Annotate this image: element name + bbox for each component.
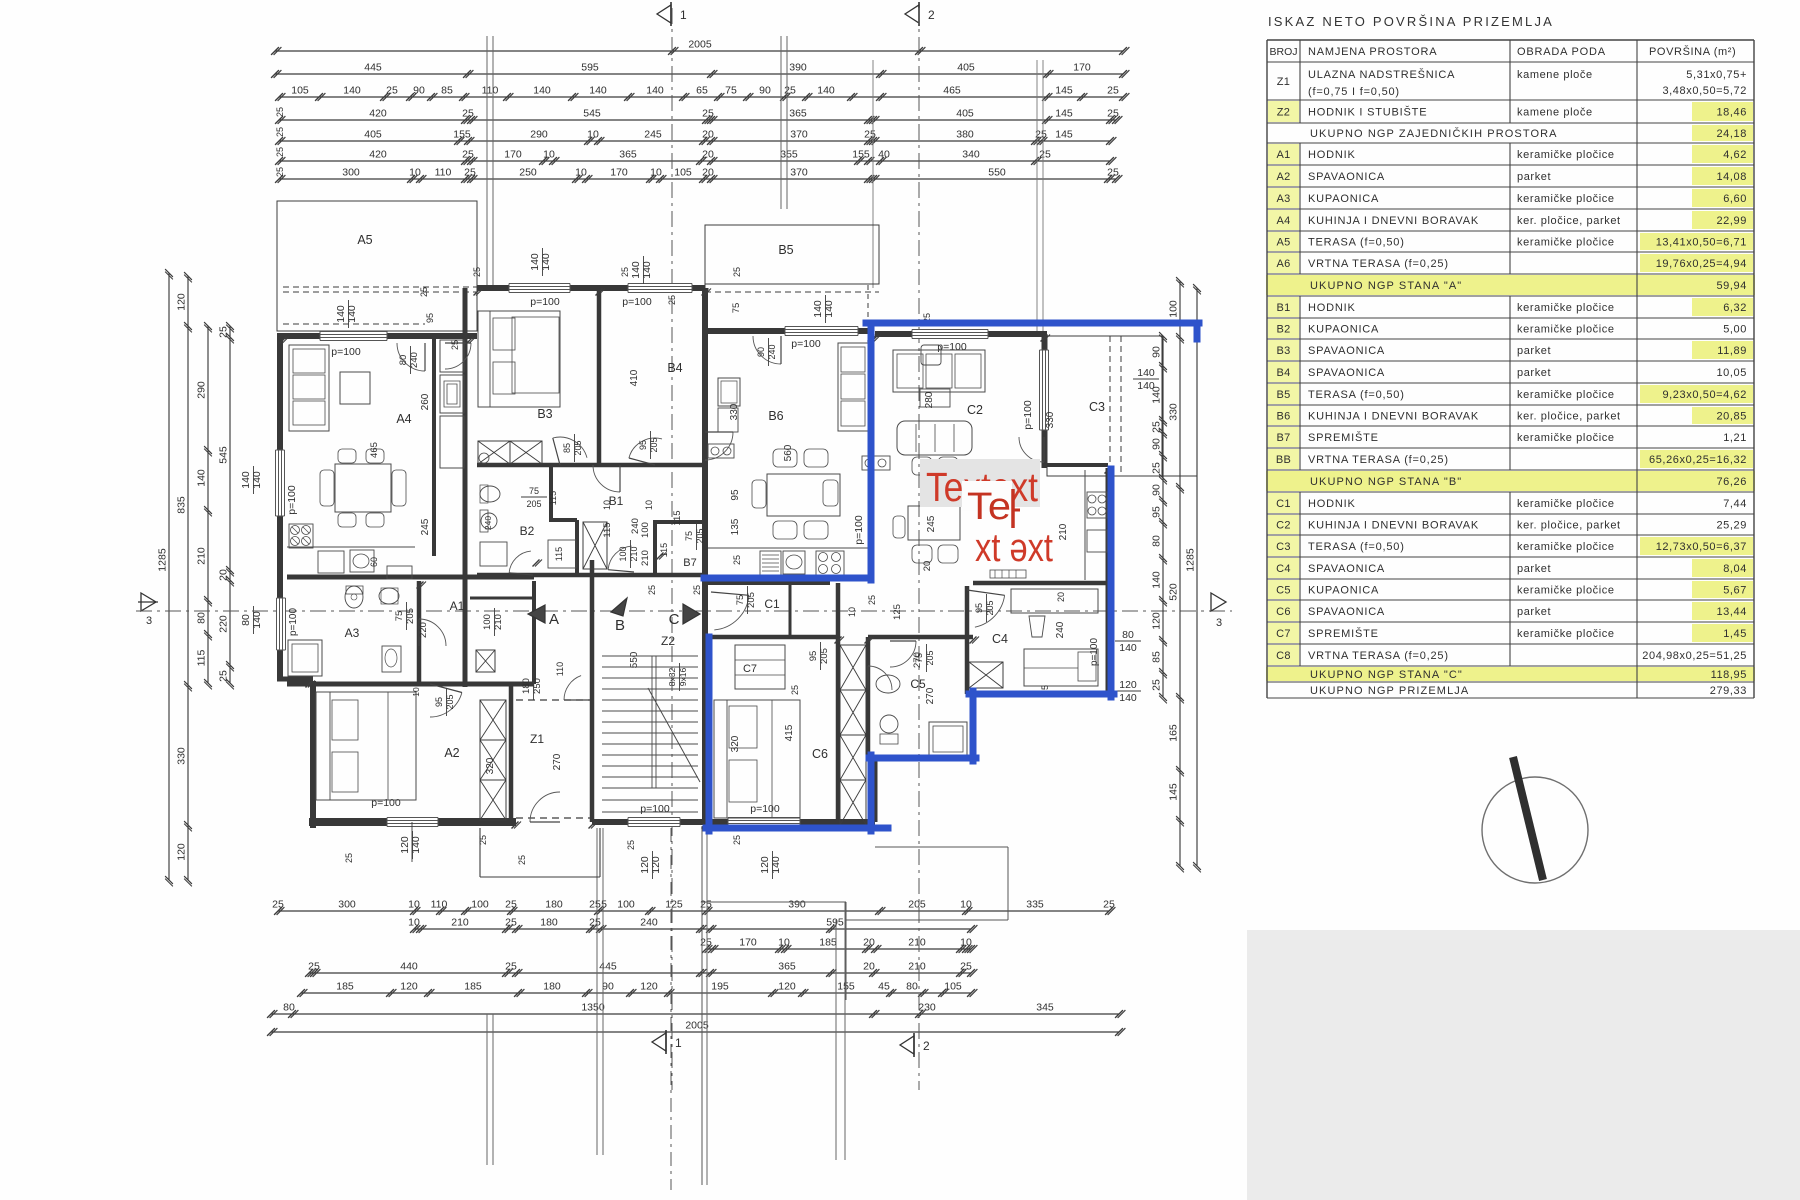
svg-text:140: 140 <box>641 261 653 279</box>
svg-text:p=100: p=100 <box>853 515 865 545</box>
svg-text:25: 25 <box>732 267 742 277</box>
svg-text:210: 210 <box>196 547 208 565</box>
svg-text:90: 90 <box>1151 484 1163 496</box>
svg-text:25: 25 <box>589 899 601 911</box>
svg-text:20: 20 <box>922 561 933 572</box>
svg-text:165: 165 <box>1168 724 1180 742</box>
svg-text:ker. pločice, parket: ker. pločice, parket <box>1517 215 1621 227</box>
svg-text:440: 440 <box>400 961 418 973</box>
svg-text:120: 120 <box>1119 679 1137 691</box>
svg-text:VRTNA TERASA (f=0,25): VRTNA TERASA (f=0,25) <box>1308 258 1449 270</box>
svg-text:SPREMIŠTE: SPREMIŠTE <box>1308 431 1379 444</box>
svg-text:A6: A6 <box>1276 258 1290 270</box>
svg-text:320: 320 <box>485 757 496 774</box>
svg-text:9,23x0,50=4,62: 9,23x0,50=4,62 <box>1662 389 1747 401</box>
svg-text:140: 140 <box>1119 642 1137 654</box>
svg-text:145: 145 <box>1055 108 1073 120</box>
svg-text:p=100: p=100 <box>371 797 401 809</box>
svg-text:NAMJENA PROSTORA: NAMJENA PROSTORA <box>1308 46 1437 58</box>
svg-text:ISKAZ NETO POVRŠINA PRIZEMLJA: ISKAZ NETO POVRŠINA PRIZEMLJA <box>1268 14 1554 29</box>
svg-text:3: 3 <box>146 615 152 627</box>
svg-text:835: 835 <box>176 496 188 514</box>
svg-text:80: 80 <box>1122 629 1134 641</box>
svg-text:300: 300 <box>338 899 356 911</box>
svg-text:13,44: 13,44 <box>1716 606 1747 618</box>
svg-text:180: 180 <box>521 678 532 694</box>
svg-text:220: 220 <box>218 615 230 633</box>
svg-text:210: 210 <box>1058 523 1069 540</box>
svg-text:25: 25 <box>1107 167 1119 179</box>
svg-text:140: 140 <box>770 856 782 874</box>
svg-text:10,05: 10,05 <box>1716 367 1747 379</box>
svg-text:110: 110 <box>435 167 452 179</box>
svg-text:120: 120 <box>1151 612 1163 630</box>
svg-text:140: 140 <box>251 471 263 489</box>
svg-text:140: 140 <box>533 85 551 97</box>
svg-text:KUHINJA I DNEVNI BORAVAK: KUHINJA I DNEVNI BORAVAK <box>1308 411 1479 423</box>
svg-text:1285: 1285 <box>1185 548 1197 572</box>
svg-text:keramičke pločice: keramičke pločice <box>1517 541 1615 553</box>
svg-text:100: 100 <box>471 899 489 911</box>
svg-text:125: 125 <box>665 899 683 911</box>
svg-text:C3: C3 <box>1089 400 1105 414</box>
svg-text:B2: B2 <box>1276 324 1290 336</box>
svg-text:415: 415 <box>784 724 795 741</box>
svg-text:410: 410 <box>629 369 640 386</box>
svg-text:25: 25 <box>864 129 876 141</box>
svg-text:20: 20 <box>1056 592 1066 602</box>
svg-text:205: 205 <box>526 499 541 509</box>
svg-text:390: 390 <box>788 899 806 911</box>
svg-text:keramičke pločice: keramičke pločice <box>1517 498 1615 510</box>
svg-text:210: 210 <box>451 917 469 929</box>
svg-text:25: 25 <box>344 853 354 863</box>
svg-text:1,45: 1,45 <box>1723 628 1747 640</box>
svg-text:45: 45 <box>878 981 890 993</box>
svg-text:75: 75 <box>684 531 694 541</box>
svg-text:25: 25 <box>517 855 527 865</box>
svg-text:80: 80 <box>283 1002 295 1014</box>
svg-text:75: 75 <box>394 611 405 622</box>
svg-text:365: 365 <box>619 149 637 161</box>
svg-text:SPAVAONICA: SPAVAONICA <box>1308 367 1385 379</box>
svg-text:140: 140 <box>823 300 835 318</box>
svg-text:p=100: p=100 <box>288 608 299 637</box>
svg-text:465: 465 <box>943 85 961 97</box>
svg-text:105: 105 <box>674 167 692 179</box>
svg-text:120: 120 <box>650 856 662 874</box>
svg-text:145: 145 <box>1055 85 1073 97</box>
svg-text:25: 25 <box>589 917 601 929</box>
svg-text:5,31x0,75+: 5,31x0,75+ <box>1686 69 1747 81</box>
svg-text:95: 95 <box>1151 506 1163 518</box>
svg-text:100: 100 <box>1168 300 1180 318</box>
svg-text:105: 105 <box>291 85 309 97</box>
svg-text:240: 240 <box>640 917 658 929</box>
svg-text:270: 270 <box>925 687 936 704</box>
svg-text:120: 120 <box>778 981 796 993</box>
svg-text:25: 25 <box>702 108 714 120</box>
svg-text:Z2: Z2 <box>1277 107 1290 119</box>
svg-text:6,60: 6,60 <box>1723 193 1747 205</box>
svg-text:keramičke pločice: keramičke pločice <box>1517 237 1615 249</box>
svg-text:10: 10 <box>778 937 790 949</box>
svg-text:p=100: p=100 <box>622 296 652 308</box>
svg-text:115: 115 <box>602 522 613 537</box>
svg-text:85: 85 <box>562 443 572 453</box>
svg-text:VRTNA TERASA (f=0,25): VRTNA TERASA (f=0,25) <box>1308 650 1449 662</box>
svg-text:B2: B2 <box>520 524 535 538</box>
svg-text:25: 25 <box>867 595 877 605</box>
svg-text:C6: C6 <box>1276 606 1291 618</box>
svg-text:25: 25 <box>275 127 285 137</box>
svg-text:xt ǝxt: xt ǝxt <box>975 526 1053 570</box>
svg-text:25: 25 <box>960 961 972 973</box>
svg-text:B1: B1 <box>1276 302 1290 314</box>
svg-text:C6: C6 <box>812 747 828 761</box>
svg-text:595: 595 <box>581 62 599 74</box>
svg-text:11,89: 11,89 <box>1717 345 1747 357</box>
svg-text:520: 520 <box>1168 583 1180 601</box>
svg-text:C7: C7 <box>743 663 757 675</box>
svg-text:25: 25 <box>478 835 488 845</box>
svg-text:keramičke pločice: keramičke pločice <box>1517 193 1615 205</box>
svg-text:A: A <box>549 611 559 628</box>
svg-text:25: 25 <box>386 85 398 97</box>
svg-text:290: 290 <box>196 381 208 399</box>
svg-text:SPAVAONICA: SPAVAONICA <box>1308 345 1385 357</box>
svg-text:340: 340 <box>962 149 980 161</box>
svg-text:B6: B6 <box>1276 411 1290 423</box>
svg-text:85: 85 <box>441 85 453 97</box>
svg-text:1285: 1285 <box>157 548 169 572</box>
svg-text:270: 270 <box>552 753 563 770</box>
svg-text:365: 365 <box>778 961 796 973</box>
svg-text:25: 25 <box>667 295 677 305</box>
svg-text:C7: C7 <box>1276 628 1291 640</box>
svg-text:100: 100 <box>618 546 628 561</box>
svg-text:ker. pločice, parket: ker. pločice, parket <box>1517 411 1621 423</box>
svg-text:2005: 2005 <box>688 39 712 51</box>
svg-text:UKUPNO NGP STANA "C": UKUPNO NGP STANA "C" <box>1310 669 1463 681</box>
svg-text:180: 180 <box>545 899 563 911</box>
svg-text:95: 95 <box>974 603 984 613</box>
svg-text:B5: B5 <box>778 243 793 257</box>
svg-text:KUPAONICA: KUPAONICA <box>1308 585 1379 597</box>
svg-text:(f=0,75 I f=0,50): (f=0,75 I f=0,50) <box>1308 86 1400 98</box>
svg-text:355: 355 <box>780 149 798 161</box>
svg-text:A4: A4 <box>396 412 411 426</box>
svg-text:OBRADA PODA: OBRADA PODA <box>1517 46 1606 58</box>
svg-text:A2: A2 <box>1276 171 1290 183</box>
svg-text:10: 10 <box>650 167 662 179</box>
svg-text:550: 550 <box>988 167 1006 179</box>
svg-text:B6: B6 <box>768 409 783 423</box>
svg-text:120: 120 <box>176 293 188 311</box>
svg-text:140: 140 <box>343 85 361 97</box>
svg-text:24,18: 24,18 <box>1716 128 1747 140</box>
svg-text:20: 20 <box>702 167 714 179</box>
svg-text:keramičke pločice: keramičke pločice <box>1517 628 1615 640</box>
svg-text:7,44: 7,44 <box>1723 498 1747 510</box>
svg-text:25: 25 <box>275 167 285 177</box>
svg-text:A5: A5 <box>1276 237 1290 249</box>
svg-text:85: 85 <box>1151 651 1163 663</box>
svg-text:6,32: 6,32 <box>1723 302 1747 314</box>
svg-text:p=100: p=100 <box>750 803 780 815</box>
svg-text:80: 80 <box>1151 535 1163 547</box>
svg-text:140: 140 <box>346 305 358 323</box>
svg-text:ULAZNA NADSTREŠNICA: ULAZNA NADSTREŠNICA <box>1308 68 1455 81</box>
svg-text:B4: B4 <box>667 361 682 375</box>
svg-text:B3: B3 <box>537 407 552 421</box>
svg-text:keramičke pločice: keramičke pločice <box>1517 432 1615 444</box>
svg-text:95: 95 <box>808 651 819 662</box>
svg-text:25: 25 <box>1151 679 1163 691</box>
svg-text:2: 2 <box>928 8 935 22</box>
svg-text:1,21: 1,21 <box>1723 432 1747 444</box>
svg-text:C3: C3 <box>1276 541 1291 553</box>
svg-text:KUHINJA I DNEVNI BORAVAK: KUHINJA I DNEVNI BORAVAK <box>1308 520 1479 532</box>
svg-text:10: 10 <box>409 167 421 179</box>
svg-text:keramičke pločice: keramičke pločice <box>1517 302 1615 314</box>
svg-text:595: 595 <box>826 917 844 929</box>
svg-text:25: 25 <box>462 149 474 161</box>
svg-text:10: 10 <box>644 500 654 510</box>
svg-text:20: 20 <box>702 129 714 141</box>
svg-text:140: 140 <box>1137 380 1155 392</box>
svg-text:10: 10 <box>408 917 420 929</box>
svg-text:90: 90 <box>756 347 766 357</box>
svg-text:TERASA (f=0,50): TERASA (f=0,50) <box>1308 541 1405 553</box>
svg-text:25: 25 <box>472 267 482 277</box>
svg-text:HODNIK: HODNIK <box>1308 149 1356 161</box>
svg-text:25: 25 <box>218 326 230 338</box>
svg-text:8,04: 8,04 <box>1723 563 1747 575</box>
svg-text:380: 380 <box>956 129 974 141</box>
svg-text:204,98x0,25=51,25: 204,98x0,25=51,25 <box>1642 650 1747 662</box>
svg-text:365: 365 <box>789 108 807 120</box>
svg-text:170: 170 <box>739 937 757 949</box>
svg-text:10: 10 <box>575 167 587 179</box>
svg-text:370: 370 <box>790 129 808 141</box>
svg-text:320: 320 <box>730 735 741 752</box>
svg-text:140: 140 <box>1151 571 1163 589</box>
svg-text:80: 80 <box>196 612 208 624</box>
svg-text:10: 10 <box>602 500 612 510</box>
svg-text:HODNIK: HODNIK <box>1308 302 1356 314</box>
svg-text:p=100: p=100 <box>286 485 298 515</box>
svg-text:kamene ploče: kamene ploče <box>1517 107 1593 119</box>
svg-text:A1: A1 <box>450 599 465 613</box>
svg-text:100: 100 <box>617 899 635 911</box>
svg-text:25: 25 <box>464 167 476 179</box>
svg-text:140: 140 <box>817 85 835 97</box>
svg-text:40: 40 <box>878 149 890 161</box>
svg-text:POVRŠINA (m²): POVRŠINA (m²) <box>1649 45 1736 58</box>
svg-text:330: 330 <box>176 747 188 765</box>
svg-text:25: 25 <box>419 287 429 297</box>
svg-text:A3: A3 <box>345 626 360 640</box>
svg-text:120: 120 <box>176 843 188 861</box>
svg-text:B7: B7 <box>683 557 696 569</box>
svg-text:445: 445 <box>599 961 617 973</box>
svg-text:80: 80 <box>906 981 918 993</box>
svg-text:75: 75 <box>735 595 746 606</box>
svg-text:230: 230 <box>918 1002 936 1014</box>
svg-text:210: 210 <box>640 550 651 566</box>
svg-text:90: 90 <box>1151 438 1163 450</box>
svg-text:B5: B5 <box>1276 389 1290 401</box>
svg-text:ker. pločice, parket: ker. pločice, parket <box>1517 520 1621 532</box>
svg-text:Te: Te <box>967 486 1011 528</box>
svg-text:25: 25 <box>647 585 657 595</box>
svg-text:HODNIK I STUBIŠTE: HODNIK I STUBIŠTE <box>1308 106 1427 119</box>
svg-text:A3: A3 <box>1276 193 1290 205</box>
svg-text:BB: BB <box>1276 454 1291 466</box>
svg-text:240: 240 <box>1055 621 1066 638</box>
svg-text:TERASA (f=0,50): TERASA (f=0,50) <box>1308 389 1405 401</box>
svg-text:205: 205 <box>908 899 926 911</box>
svg-text:1350: 1350 <box>581 1002 605 1014</box>
svg-text:p=100: p=100 <box>937 341 967 353</box>
svg-text:140: 140 <box>196 469 208 487</box>
svg-text:A5: A5 <box>357 233 372 247</box>
svg-text:1: 1 <box>680 8 687 22</box>
svg-text:25: 25 <box>272 899 284 911</box>
svg-text:560: 560 <box>783 444 794 461</box>
svg-text:25: 25 <box>218 670 230 682</box>
svg-text:120: 120 <box>400 981 418 993</box>
svg-text:110: 110 <box>482 85 499 97</box>
svg-text:25: 25 <box>1151 421 1163 433</box>
svg-text:SPAVAONICA: SPAVAONICA <box>1308 171 1385 183</box>
svg-text:C4: C4 <box>992 632 1008 646</box>
svg-text:95: 95 <box>638 440 648 450</box>
svg-text:465: 465 <box>369 442 380 458</box>
svg-text:25,29: 25,29 <box>1716 520 1747 532</box>
svg-text:25: 25 <box>1107 85 1119 97</box>
svg-text:10: 10 <box>543 149 555 161</box>
svg-text:3: 3 <box>1216 617 1222 629</box>
svg-text:KUPAONICA: KUPAONICA <box>1308 193 1379 205</box>
svg-text:UKUPNO NGP STANA "A": UKUPNO NGP STANA "A" <box>1310 280 1462 292</box>
svg-text:170: 170 <box>1073 62 1091 74</box>
svg-text:185: 185 <box>336 981 354 993</box>
svg-text:SPREMIŠTE: SPREMIŠTE <box>1308 627 1379 640</box>
svg-text:25: 25 <box>1103 899 1115 911</box>
svg-text:140: 140 <box>589 85 607 97</box>
svg-text:25: 25 <box>505 961 517 973</box>
svg-text:25: 25 <box>620 267 630 277</box>
svg-text:20: 20 <box>218 569 230 581</box>
svg-text:C8: C8 <box>1276 650 1291 662</box>
svg-text:300: 300 <box>342 167 360 179</box>
svg-text:185: 185 <box>819 937 837 949</box>
svg-text:135: 135 <box>730 518 741 535</box>
svg-text:90: 90 <box>1151 346 1163 358</box>
svg-text:A1: A1 <box>1276 149 1290 161</box>
svg-text:180: 180 <box>543 981 561 993</box>
svg-text:UKUPNO NGP STANA "B": UKUPNO NGP STANA "B" <box>1310 476 1462 488</box>
svg-text:20,85: 20,85 <box>1716 411 1747 423</box>
svg-text:60: 60 <box>369 557 379 567</box>
svg-text:B: B <box>615 617 625 634</box>
svg-text:Z1: Z1 <box>1277 76 1290 88</box>
svg-text:65,26x0,25=16,32: 65,26x0,25=16,32 <box>1649 454 1747 466</box>
svg-text:445: 445 <box>364 62 382 74</box>
svg-text:SPAVAONICA: SPAVAONICA <box>1308 563 1385 575</box>
svg-text:170: 170 <box>504 149 522 161</box>
svg-text:VRTNA TERASA (f=0,25): VRTNA TERASA (f=0,25) <box>1308 454 1449 466</box>
svg-text:2005: 2005 <box>685 1020 709 1032</box>
svg-text:A4: A4 <box>1276 215 1290 227</box>
svg-text:20: 20 <box>702 149 714 161</box>
svg-text:5,00: 5,00 <box>1723 324 1747 336</box>
svg-text:p=100: p=100 <box>791 338 821 350</box>
svg-text:25: 25 <box>732 835 742 845</box>
svg-text:parket: parket <box>1517 345 1551 357</box>
svg-text:25: 25 <box>692 585 702 595</box>
svg-text:90: 90 <box>602 981 614 993</box>
svg-text:59,94: 59,94 <box>1716 280 1747 292</box>
svg-text:B7: B7 <box>1276 432 1290 444</box>
svg-text:parket: parket <box>1517 563 1551 575</box>
svg-text:95: 95 <box>434 697 444 707</box>
svg-text:C2: C2 <box>1276 520 1291 532</box>
svg-text:12,73x0,50=6,37: 12,73x0,50=6,37 <box>1656 541 1747 553</box>
svg-text:100: 100 <box>640 522 651 538</box>
svg-text:65: 65 <box>696 85 708 97</box>
svg-text:180: 180 <box>540 917 558 929</box>
svg-text:25: 25 <box>1107 108 1119 120</box>
svg-text:140: 140 <box>1137 367 1155 379</box>
svg-text:3,48x0,50=5,72: 3,48x0,50=5,72 <box>1662 85 1747 97</box>
svg-text:405: 405 <box>364 129 382 141</box>
svg-text:p=100: p=100 <box>331 346 361 358</box>
svg-text:330: 330 <box>729 403 740 420</box>
svg-text:25: 25 <box>308 961 320 973</box>
svg-text:20: 20 <box>863 937 875 949</box>
svg-text:76,26: 76,26 <box>1716 476 1747 488</box>
svg-text:parket: parket <box>1517 606 1551 618</box>
svg-text:330: 330 <box>1045 411 1056 428</box>
svg-text:25: 25 <box>1151 462 1163 474</box>
svg-text:keramičke pločice: keramičke pločice <box>1517 149 1615 161</box>
svg-text:140: 140 <box>540 253 552 271</box>
svg-text:110: 110 <box>555 662 565 676</box>
svg-text:145: 145 <box>1055 129 1073 141</box>
svg-text:260: 260 <box>420 393 431 410</box>
svg-text:19,76x0,25=4,94: 19,76x0,25=4,94 <box>1656 258 1747 270</box>
svg-text:25: 25 <box>450 340 460 350</box>
svg-text:75: 75 <box>529 486 539 496</box>
svg-text:405: 405 <box>956 108 974 120</box>
svg-text:110: 110 <box>431 899 448 911</box>
svg-text:185: 185 <box>464 981 482 993</box>
svg-text:25: 25 <box>790 685 800 695</box>
svg-text:80: 80 <box>398 355 409 366</box>
svg-text:140: 140 <box>1119 692 1137 704</box>
svg-text:210: 210 <box>908 961 926 973</box>
svg-text:279,33: 279,33 <box>1710 685 1747 697</box>
svg-text:14,08: 14,08 <box>1716 171 1747 183</box>
svg-text:170: 170 <box>610 167 628 179</box>
svg-text:Z2: Z2 <box>661 634 675 648</box>
svg-text:330: 330 <box>1168 403 1180 421</box>
svg-text:245: 245 <box>644 129 662 141</box>
svg-text:8x32: 8x32 <box>667 668 677 687</box>
